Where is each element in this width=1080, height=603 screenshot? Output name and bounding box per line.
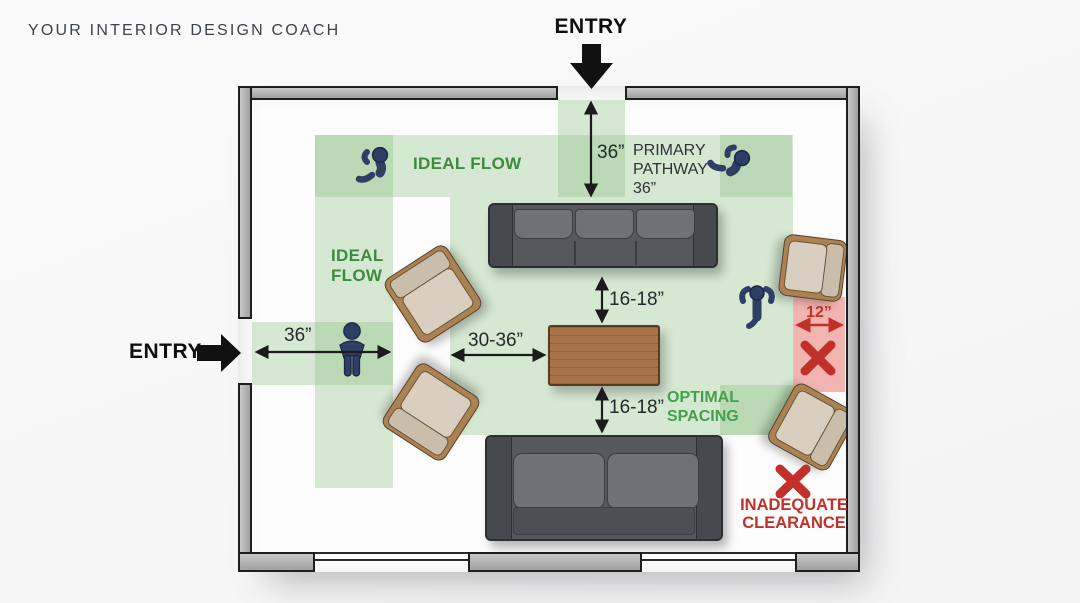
wall-left-lower (238, 383, 252, 572)
measurement-wall-gap: 12” (799, 304, 839, 322)
window-bottom-left (315, 552, 468, 561)
coffee-table (548, 325, 660, 386)
floor-plan-slide: YOUR INTERIOR DESIGN COACH (0, 0, 1080, 603)
measurement-top-entry: 36” (597, 142, 624, 164)
entry-arrow-right-icon (197, 334, 241, 372)
entry-arrow-down-icon (570, 44, 613, 89)
measurement-sofa-table-upper: 16-18” (609, 289, 664, 311)
optimal-spacing-label: OPTIMAL SPACING (667, 389, 739, 426)
wall-top-left (238, 86, 558, 100)
armchair-upper-right (777, 233, 848, 302)
window-bottom-right (642, 552, 795, 561)
sofa-back-cushion (514, 209, 573, 239)
sofa-armrest (487, 437, 512, 539)
armchair-seat-cushion (783, 240, 827, 295)
sofa-three-seat (488, 203, 718, 268)
wall-bottom-right (795, 552, 860, 572)
sofa-armrest (696, 437, 721, 539)
sofa-two-seat (485, 435, 723, 541)
sofa-armrest (490, 205, 513, 266)
wall-top-right (625, 86, 860, 100)
standing-person-icon (330, 320, 374, 380)
primary-pathway-label: PRIMARY PATHWAY 36” (633, 141, 708, 198)
entry-left-label: ENTRY (129, 340, 202, 364)
person-top-view-icon (734, 280, 780, 332)
wall-bottom-left (238, 552, 315, 572)
sofa-seat-cushion (513, 453, 605, 509)
measurement-chair-to-table: 30-36” (468, 330, 523, 352)
wall-left-upper (238, 86, 252, 319)
entry-top-label: ENTRY (541, 15, 641, 39)
ideal-flow-horizontal-label: IDEAL FLOW (413, 154, 521, 174)
sofa-back-cushion (636, 209, 695, 239)
measurement-sofa-table-lower: 16-18” (609, 397, 664, 419)
sofa-backrest (513, 507, 695, 535)
sofa-seat-cushion (607, 453, 699, 509)
sofa-seat-seam (574, 241, 576, 265)
sofa-back-cushion (575, 209, 634, 239)
ideal-flow-vertical-label: IDEAL FLOW (331, 246, 384, 286)
brand-title: YOUR INTERIOR DESIGN COACH (28, 22, 340, 40)
sofa-seat-seam (635, 241, 637, 265)
flow-zone-left-column (315, 135, 393, 488)
wall-bottom-middle (468, 552, 642, 572)
sofa-armrest (693, 205, 716, 266)
measurement-left-entry: 36” (284, 325, 311, 347)
inadequate-clearance-label: INADEQUATE CLEARANCE (733, 496, 855, 532)
walking-person-icon (352, 140, 398, 186)
